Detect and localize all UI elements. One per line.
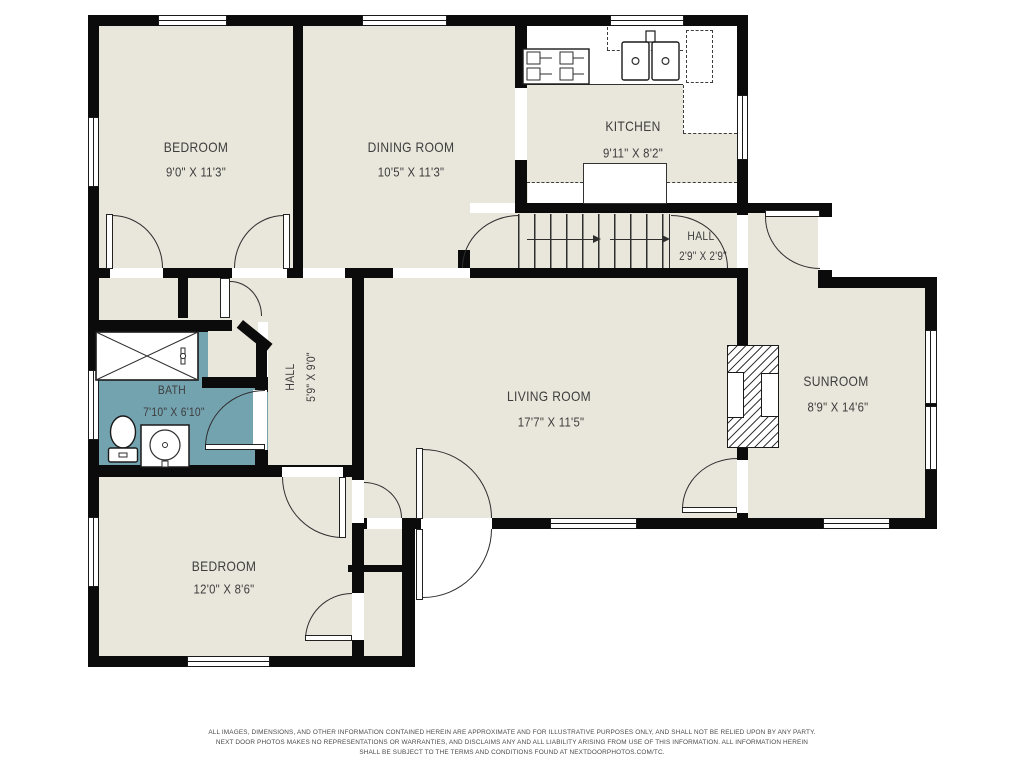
room-name-dining-room: DINING ROOM (368, 139, 455, 155)
bathtub-icon (95, 331, 199, 381)
room-name-living-room: LIVING ROOM (507, 388, 591, 404)
door-opening (515, 88, 527, 160)
window (158, 15, 227, 26)
room-name-sunroom: SUNROOM (803, 373, 868, 389)
fireplace-notch (761, 373, 779, 417)
window (88, 117, 99, 187)
wall (470, 268, 737, 278)
room-dims-hall-upper: 2'9" X 2'9" (679, 251, 727, 263)
window (610, 15, 684, 26)
wall (818, 277, 937, 288)
disclaimer-line: SHALL BE SUBJECT TO THE TERMS AND CONDIT… (0, 748, 1024, 758)
door-opening (282, 467, 343, 477)
window (187, 656, 270, 667)
window (737, 95, 748, 160)
room-name-bath: BATH (158, 383, 186, 397)
room-dims-bath: 7'10" X 6'10" (143, 405, 205, 419)
floor-plan-page: BEDROOM 9'0" X 11'3" DINING ROOM 10'5" X… (0, 0, 1024, 768)
disclaimer-line: NEXT DOOR PHOTOS MAKES NO REPRESENTATION… (0, 738, 1024, 748)
counter-dashed-line (683, 85, 684, 133)
bath-door-leaf (205, 444, 265, 450)
window (925, 406, 937, 470)
room-dims-hall-lower: 5'9" X 9'0" (304, 352, 318, 402)
wall (515, 160, 527, 213)
window (88, 517, 99, 587)
window (823, 518, 890, 529)
window (550, 518, 637, 529)
room-dims-sunroom: 8'9" X 14'6" (808, 400, 869, 415)
room-name-hall-upper: HALL (687, 229, 714, 243)
rear-door-leaf (416, 529, 423, 600)
door-opening (737, 215, 748, 268)
door-opening (818, 217, 832, 270)
window (362, 15, 447, 26)
floor-closet-upper (362, 529, 402, 565)
room-dims-bedroom-2: 12'0" X 8'6" (194, 582, 255, 597)
door-opening (232, 268, 287, 278)
stove-icon (522, 48, 590, 85)
door-opening (737, 460, 748, 513)
door-opening (352, 480, 364, 523)
wall (345, 268, 393, 278)
stair-direction-arrow (610, 239, 663, 240)
rear-door-swing-arc (423, 529, 492, 598)
door-leaf (339, 477, 346, 538)
wall (352, 518, 737, 529)
wall (293, 26, 303, 268)
wall (402, 518, 415, 667)
stair-arrow-head-icon (662, 235, 670, 243)
room-name-kitchen: KITCHEN (605, 118, 660, 134)
stair-arrow-head-icon (593, 235, 601, 243)
disclaimer-text: ALL IMAGES, DIMENSIONS, AND OTHER INFORM… (0, 728, 1024, 758)
fireplace-notch (727, 372, 744, 418)
bathroom-sink-icon (140, 424, 190, 468)
floor-closet-lower (362, 572, 402, 656)
door-leaf (106, 214, 113, 269)
door-opening (367, 518, 402, 529)
room-name-hall-lower: HALL (283, 363, 297, 390)
closet-door-leaf (220, 278, 230, 318)
room-dims-kitchen: 9'11" X 8'2" (603, 146, 663, 161)
wall (178, 278, 188, 318)
stair-direction-arrow (527, 239, 593, 240)
room-name-bedroom-1: BEDROOM (164, 139, 229, 155)
door-opening (352, 593, 364, 640)
counter-dashed-line (527, 182, 583, 183)
door-leaf (283, 214, 290, 269)
counter-dashed-line (683, 133, 737, 134)
front-door-leaf (765, 210, 820, 217)
rear-door-leaf (416, 448, 423, 519)
toilet-icon (106, 414, 140, 466)
window (925, 330, 937, 404)
door-opening (470, 203, 515, 213)
kitchen-island (583, 163, 667, 204)
closet-door-leaf (305, 635, 352, 641)
floor-plan: BEDROOM 9'0" X 11'3" DINING ROOM 10'5" X… (0, 0, 1024, 768)
room-dims-living-room: 17'7" X 11'5" (518, 415, 585, 430)
disclaimer-line: ALL IMAGES, DIMENSIONS, AND OTHER INFORM… (0, 728, 1024, 738)
wall (255, 450, 268, 466)
kitchen-sink-icon (620, 30, 680, 82)
door-leaf (682, 507, 737, 513)
counter-dashed-line (607, 27, 608, 50)
room-dims-bedroom-1: 9'0" X 11'3" (166, 165, 226, 180)
room-name-bedroom-2: BEDROOM (192, 558, 257, 574)
door-opening (421, 518, 492, 529)
door-opening (110, 268, 163, 278)
door-opening (303, 268, 345, 278)
appliance-dashed-outline (686, 30, 713, 83)
room-dims-dining-room: 10'5" X 11'3" (378, 165, 445, 180)
counter-dashed-line (667, 182, 737, 183)
door-opening (393, 268, 470, 278)
